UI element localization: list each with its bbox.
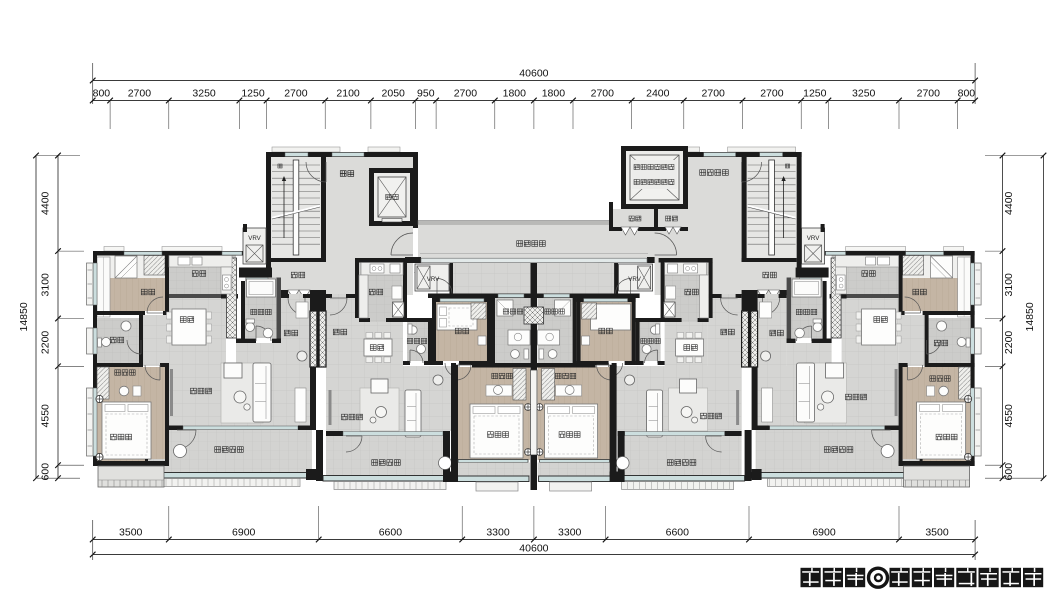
svg-text:40600: 40600 [519, 68, 548, 80]
svg-text:2700: 2700 [284, 88, 308, 100]
svg-text:950: 950 [417, 88, 435, 100]
svg-text:4400: 4400 [40, 191, 52, 215]
svg-text:3500: 3500 [119, 527, 143, 539]
svg-text:14850: 14850 [1024, 302, 1036, 331]
svg-text:4550: 4550 [40, 404, 52, 428]
svg-text:2700: 2700 [591, 88, 615, 100]
svg-text:4550: 4550 [1003, 404, 1015, 428]
svg-text:2700: 2700 [917, 88, 941, 100]
svg-text:VRV: VRV [427, 276, 440, 283]
svg-text:VRV: VRV [248, 235, 261, 242]
svg-text:2100: 2100 [336, 88, 360, 100]
svg-text:VRV: VRV [807, 235, 820, 242]
svg-text:1250: 1250 [803, 88, 827, 100]
svg-text:3500: 3500 [925, 527, 949, 539]
svg-text:1800: 1800 [542, 88, 566, 100]
svg-text:2400: 2400 [646, 88, 670, 100]
svg-text:2200: 2200 [40, 331, 52, 355]
svg-text:2700: 2700 [454, 88, 478, 100]
svg-text:3100: 3100 [40, 273, 52, 297]
svg-text:2700: 2700 [128, 88, 152, 100]
svg-text:2050: 2050 [382, 88, 406, 100]
svg-text:6600: 6600 [379, 527, 403, 539]
svg-text:600: 600 [40, 463, 52, 481]
svg-text:6900: 6900 [232, 527, 256, 539]
svg-text:600: 600 [1003, 463, 1015, 481]
svg-text:4400: 4400 [1003, 191, 1015, 215]
svg-text:3250: 3250 [852, 88, 876, 100]
svg-text:800: 800 [93, 88, 111, 100]
svg-text:3250: 3250 [192, 88, 216, 100]
svg-text:3300: 3300 [486, 527, 510, 539]
svg-text:800: 800 [958, 88, 976, 100]
svg-text:1250: 1250 [241, 88, 265, 100]
svg-text:2700: 2700 [702, 88, 726, 100]
svg-text:6600: 6600 [666, 527, 690, 539]
svg-text:1800: 1800 [503, 88, 527, 100]
svg-text:3300: 3300 [558, 527, 582, 539]
svg-text:14850: 14850 [18, 302, 30, 331]
svg-text:3100: 3100 [1003, 273, 1015, 297]
svg-text:6900: 6900 [812, 527, 836, 539]
svg-text:2200: 2200 [1003, 331, 1015, 355]
svg-text:VRV: VRV [628, 276, 641, 283]
svg-text:2700: 2700 [760, 88, 784, 100]
svg-text:40600: 40600 [519, 543, 548, 555]
